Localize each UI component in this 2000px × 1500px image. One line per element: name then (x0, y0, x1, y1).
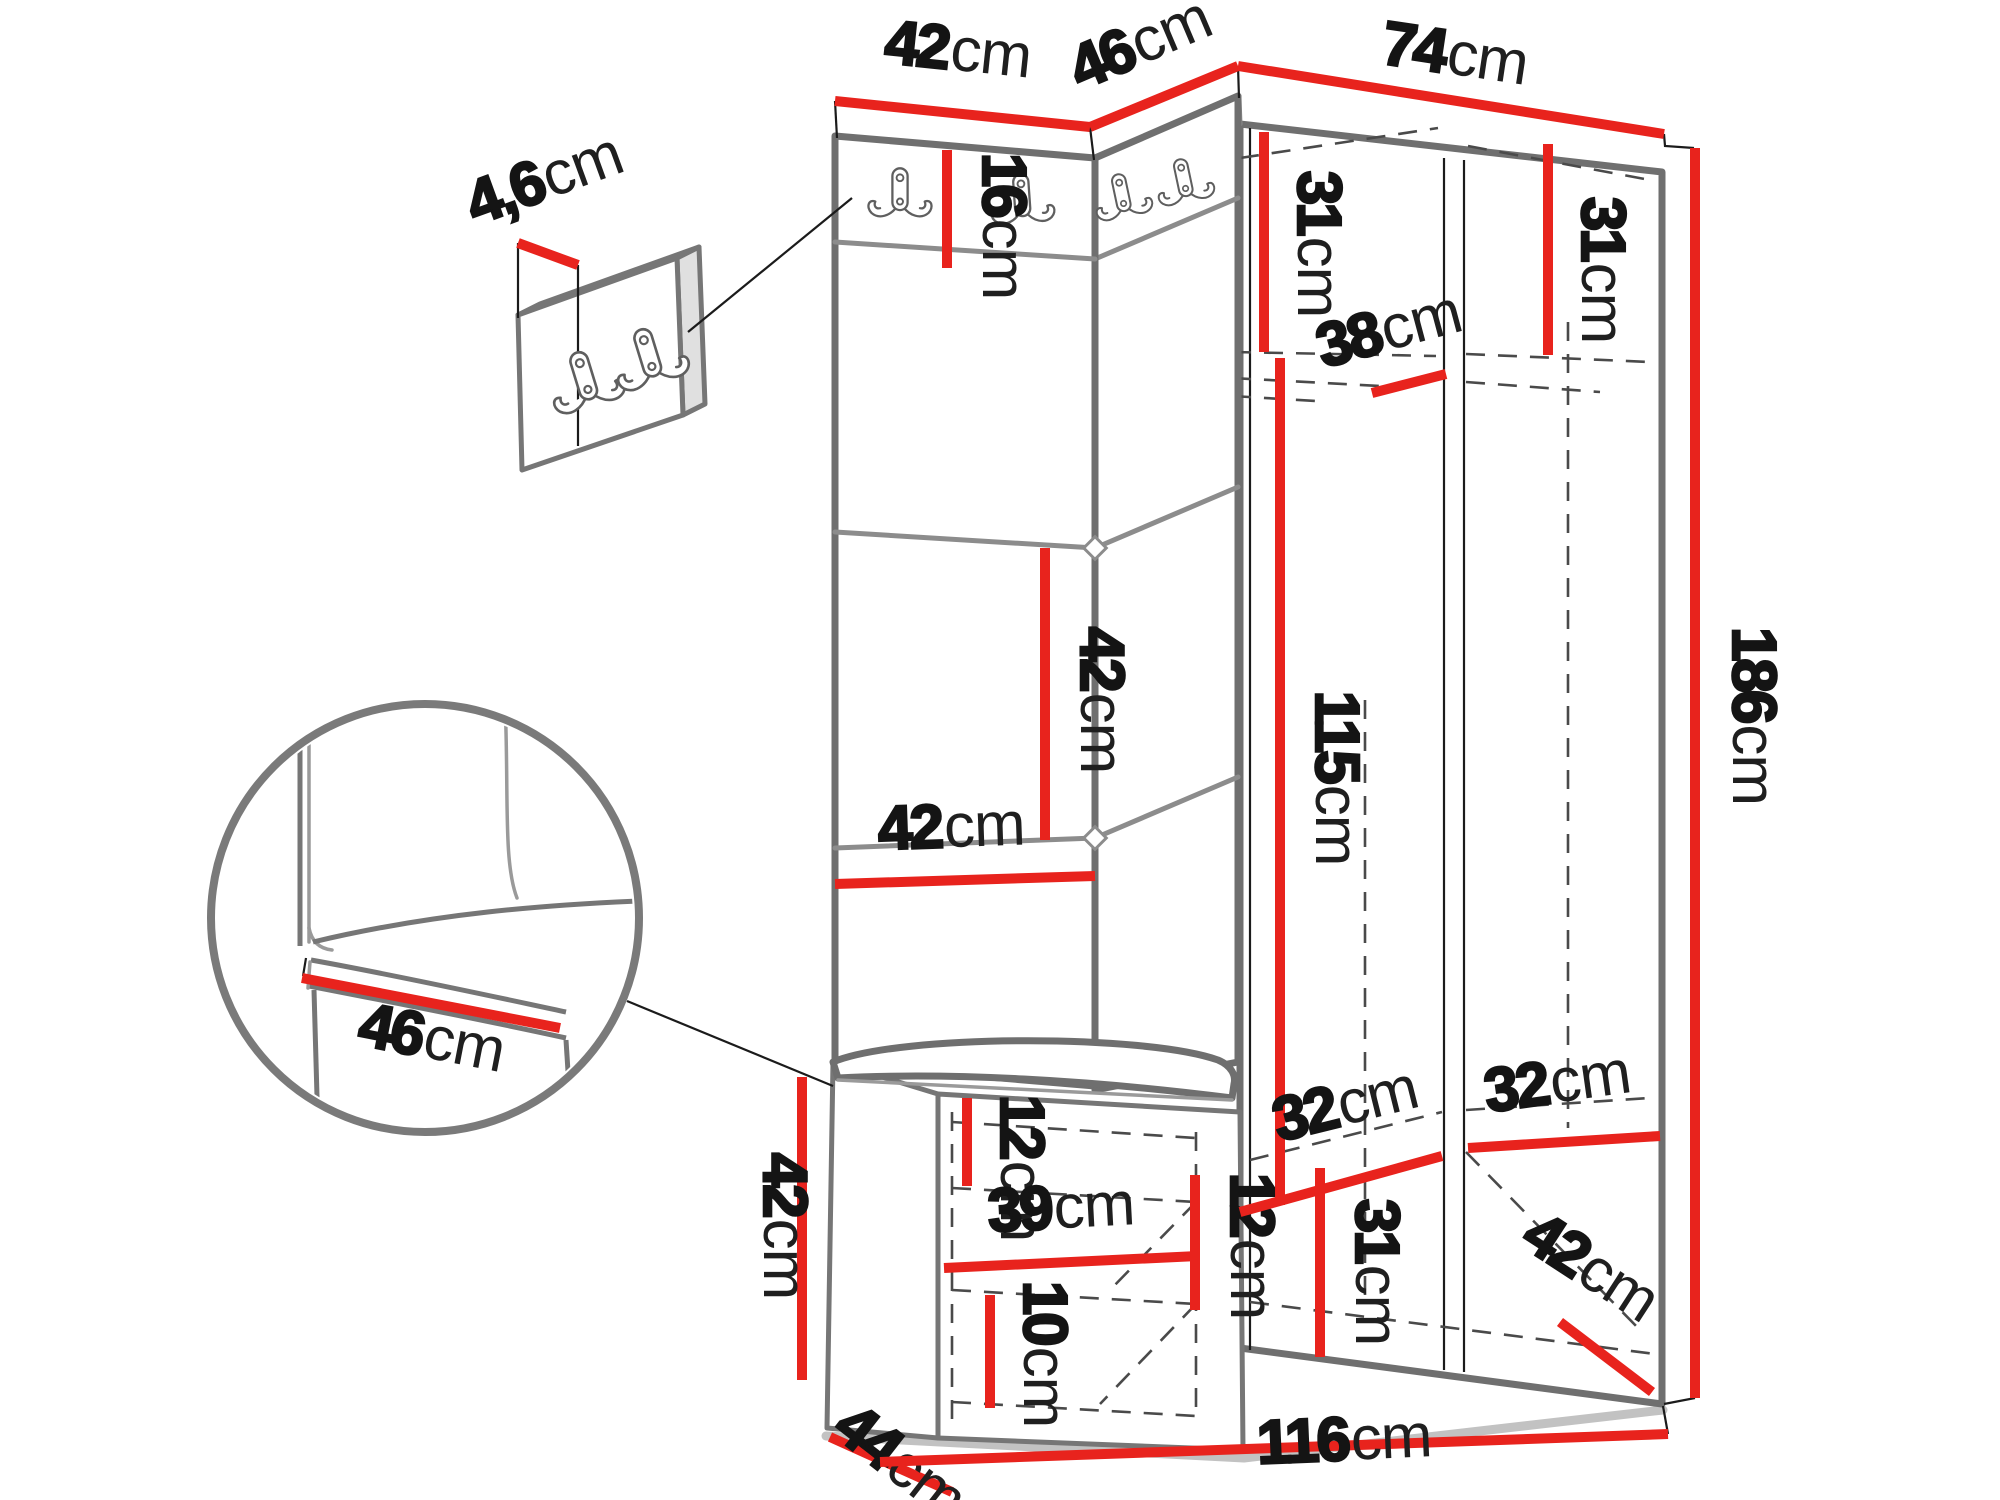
dimension-label-wardrobe-top-width-74: 74cm (1377, 9, 1532, 99)
hallway-furniture-dimension-diagram: 42cm46cm74cm16cm31cm31cm38cm42cm42cm115c… (0, 0, 2000, 1500)
dimension-label-panel-square-42-vertical: 42cm (1067, 627, 1136, 774)
corner-panel-face (1095, 96, 1238, 1090)
bench-side-panel (827, 1062, 938, 1438)
dimension-label-total-width-116: 116cm (1255, 1401, 1433, 1478)
dimension-label-bench-height-42: 42cm (750, 1153, 819, 1300)
leader-line-bench-detail (627, 1001, 833, 1086)
upholstered-panel-face (835, 136, 1095, 1086)
dimension-hook-panel-thickness-4-6: 4,6cm (457, 119, 632, 265)
dimension-label-bench-inner-width-39: 39cm (986, 1169, 1136, 1246)
dimension-label-panel-top-width-42: 42cm (882, 8, 1035, 92)
dimension-label-door-height-115: 115cm (1302, 691, 1371, 866)
diagram-stage: 42cm46cm74cm16cm31cm31cm38cm42cm42cm115c… (0, 0, 2000, 1500)
dimension-panel-top-width-42: 42cm (835, 8, 1090, 127)
dimension-label-compartment-height-31: 31cm (1342, 1199, 1411, 1346)
dimension-total-height-186: 186cm (1695, 148, 1788, 1398)
dimension-label-panel-square-42-horizontal: 42cm (877, 789, 1026, 863)
dimension-bench-height-42: 42cm (750, 1077, 819, 1380)
hook-panel-detail (518, 247, 705, 470)
leader-line-hook-panel (688, 198, 852, 332)
dimension-wardrobe-top-width-74: 74cm (1238, 9, 1664, 134)
dimension-label-top-shelf-height-31-right: 31cm (1568, 197, 1637, 344)
dimension-label-bench-inner-height-12-right: 12cm (1217, 1173, 1286, 1320)
dimension-label-bench-bottom-height-10: 10cm (1010, 1281, 1079, 1428)
dimension-label-top-shelf-height-31-left: 31cm (1284, 171, 1353, 318)
dimension-label-hook-panel-thickness-4-6: 4,6cm (457, 119, 632, 239)
furniture-outline (211, 66, 1695, 1458)
dimension-label-hook-strip-height-16: 16cm (969, 153, 1038, 300)
dimension-line-panel-top-width-42 (835, 101, 1090, 127)
dimension-label-total-height-186: 186cm (1719, 627, 1788, 805)
dimension-line-hook-panel-thickness-4-6 (518, 243, 578, 265)
